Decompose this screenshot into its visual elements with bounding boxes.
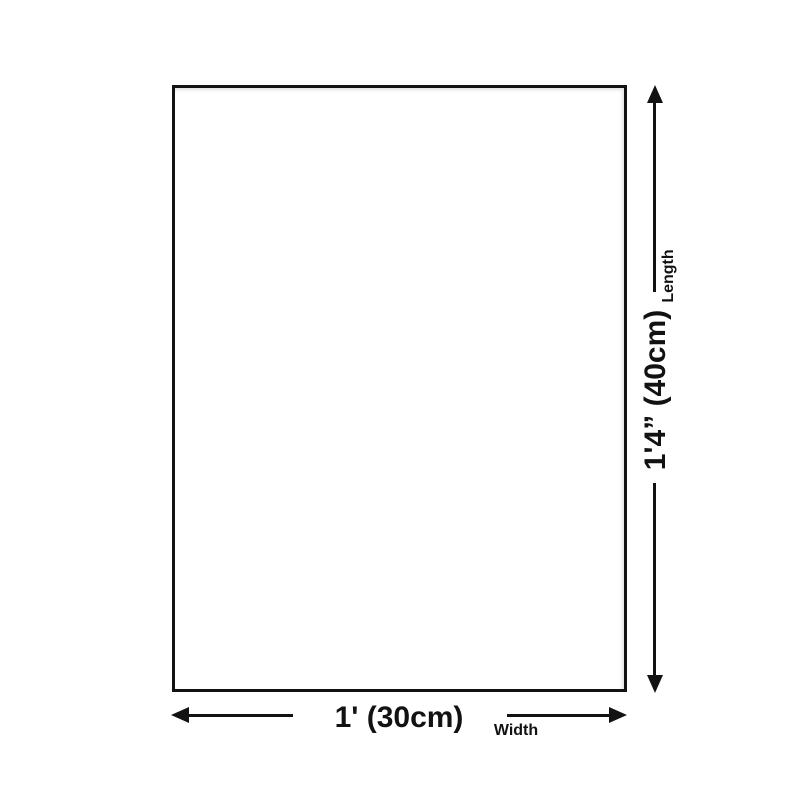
width-label: Width <box>494 723 538 739</box>
arrow-down-icon <box>647 675 663 693</box>
length-dimension-line-lower <box>653 483 656 676</box>
length-value: 1'4” (40cm) <box>641 310 671 471</box>
dimension-diagram: Length 1'4” (40cm) 1' (30cm) Width <box>0 0 800 800</box>
length-dimension-line-upper <box>653 102 656 292</box>
arrow-up-icon <box>647 85 663 103</box>
width-dimension-line-left <box>189 714 293 717</box>
length-label: Length <box>661 249 677 302</box>
product-rectangle <box>172 85 627 692</box>
arrow-right-icon <box>609 707 627 723</box>
width-dimension-line-right <box>507 714 610 717</box>
width-value: 1' (30cm) <box>335 703 464 733</box>
arrow-left-icon <box>171 707 189 723</box>
